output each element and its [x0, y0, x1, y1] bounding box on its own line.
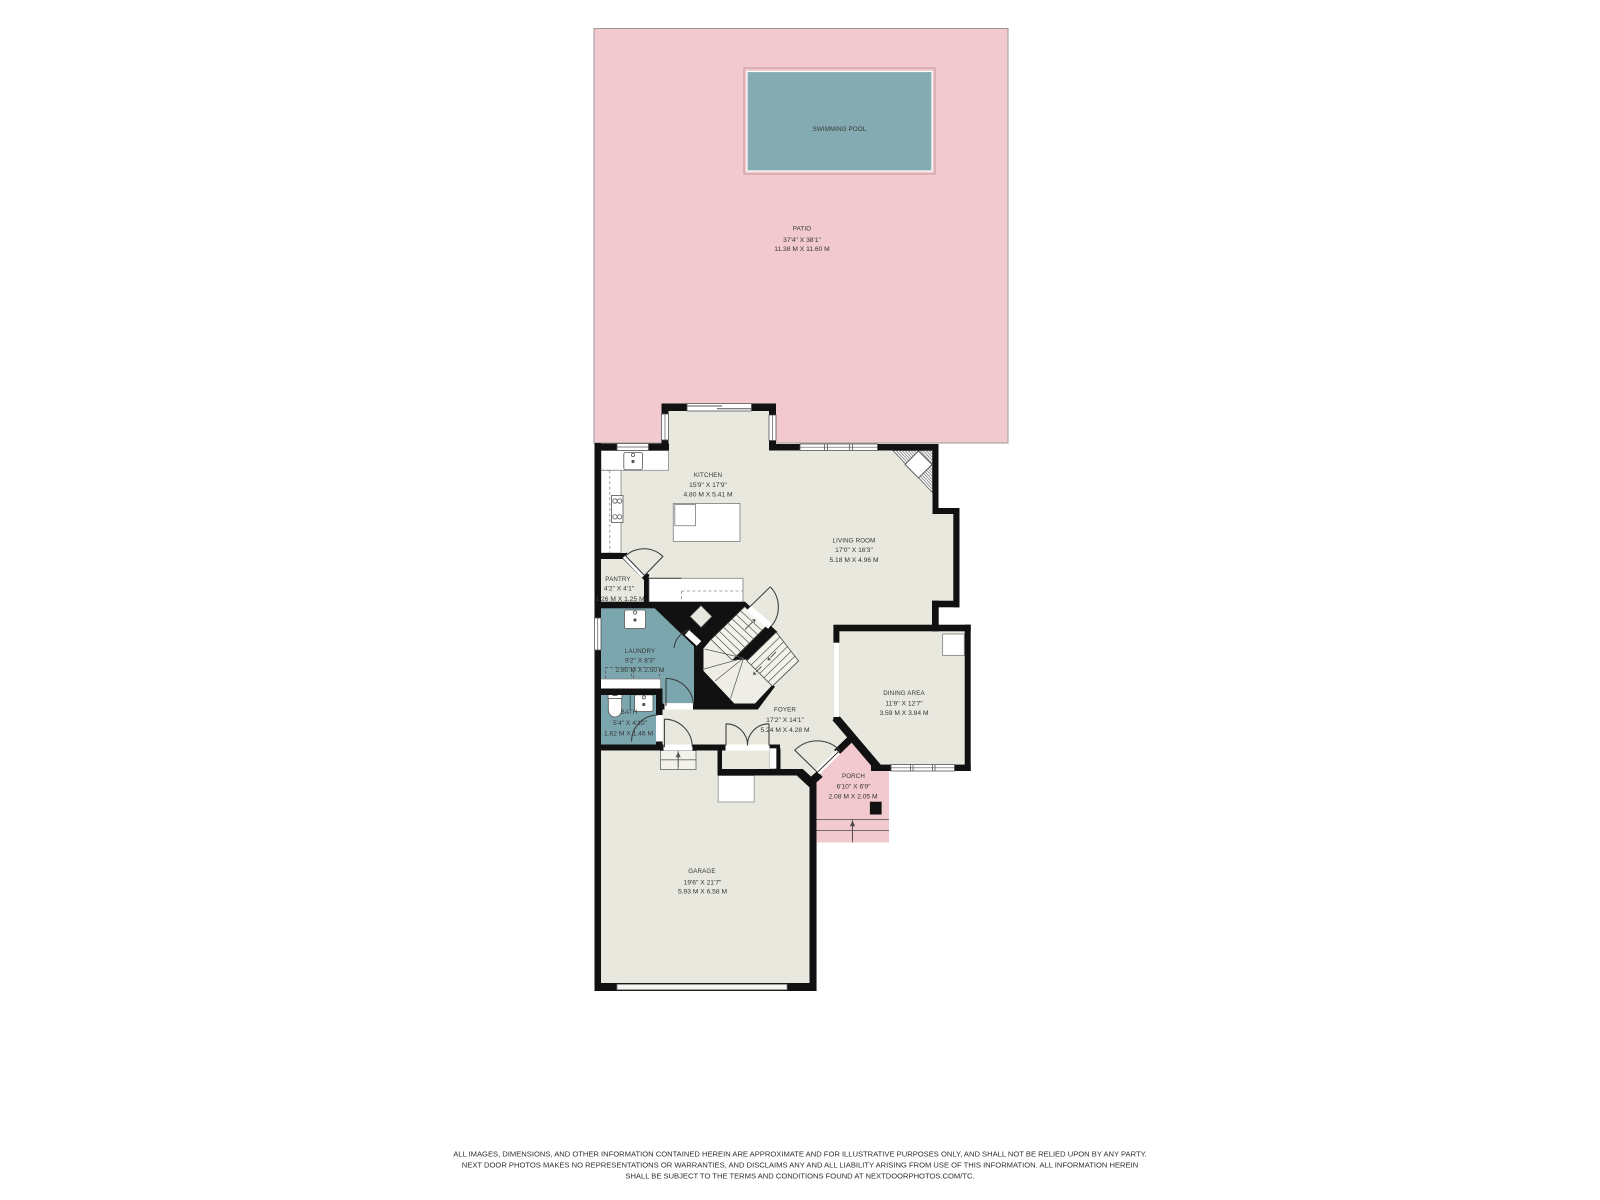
svg-text:ALL IMAGES, DIMENSIONS, AND OT: ALL IMAGES, DIMENSIONS, AND OTHER INFORM…: [453, 1150, 1147, 1159]
svg-text:37'4" X 38'1": 37'4" X 38'1": [783, 237, 821, 244]
svg-text:9'2" X 8'3": 9'2" X 8'3": [625, 657, 656, 664]
svg-text:PORCH: PORCH: [842, 773, 865, 780]
svg-text:5.93 M X 6.58 M: 5.93 M X 6.58 M: [678, 889, 727, 896]
svg-text:11.38 M X 11.60 M: 11.38 M X 11.60 M: [774, 246, 830, 253]
svg-text:17'0" X 16'3": 17'0" X 16'3": [835, 547, 873, 554]
svg-text:6'10" X 6'9": 6'10" X 6'9": [836, 783, 871, 790]
svg-text:19'6" X 21'7": 19'6" X 21'7": [684, 880, 722, 887]
svg-text:KITCHEN: KITCHEN: [694, 472, 722, 479]
svg-text:SWIMMING POOL: SWIMMING POOL: [813, 126, 867, 133]
svg-text:15'9" X 17'9": 15'9" X 17'9": [689, 482, 727, 489]
svg-text:PATIO: PATIO: [793, 226, 811, 233]
svg-text:2.80 M X 2.50 M: 2.80 M X 2.50 M: [615, 667, 664, 674]
svg-text:3.59 M X 3.84 M: 3.59 M X 3.84 M: [879, 710, 928, 717]
svg-text:SHALL BE SUBJECT TO THE TERMS: SHALL BE SUBJECT TO THE TERMS AND CONDIT…: [625, 1172, 974, 1181]
svg-text:1.26 M X 1.25 M: 1.26 M X 1.25 M: [595, 596, 644, 603]
svg-text:17'2" X 14'1": 17'2" X 14'1": [766, 717, 804, 724]
svg-text:5'4" X 4'10": 5'4" X 4'10": [613, 720, 648, 727]
svg-text:NEXT DOOR PHOTOS MAKES NO REPR: NEXT DOOR PHOTOS MAKES NO REPRESENTATION…: [462, 1161, 1138, 1170]
svg-text:PANTRY: PANTRY: [605, 576, 630, 583]
svg-text:GARAGE: GARAGE: [688, 868, 715, 875]
svg-text:LAUNDRY: LAUNDRY: [625, 648, 656, 655]
svg-text:11'9" X 12'7": 11'9" X 12'7": [885, 700, 923, 707]
svg-text:BATH: BATH: [621, 709, 638, 716]
svg-text:2.08 M X 2.05 M: 2.08 M X 2.05 M: [828, 793, 877, 800]
svg-text:DINING AREA: DINING AREA: [883, 690, 925, 697]
svg-text:FOYER: FOYER: [774, 707, 796, 714]
svg-text:5.18 M X 4.96 M: 5.18 M X 4.96 M: [829, 557, 878, 564]
svg-text:LIVING ROOM: LIVING ROOM: [833, 538, 876, 545]
svg-text:4.80 M X 5.41 M: 4.80 M X 5.41 M: [683, 492, 732, 499]
svg-text:4'2" X 4'1": 4'2" X 4'1": [604, 586, 635, 593]
svg-text:1.62 M X 1.46 M: 1.62 M X 1.46 M: [604, 731, 653, 738]
svg-text:5.24 M X 4.28 M: 5.24 M X 4.28 M: [760, 727, 809, 734]
